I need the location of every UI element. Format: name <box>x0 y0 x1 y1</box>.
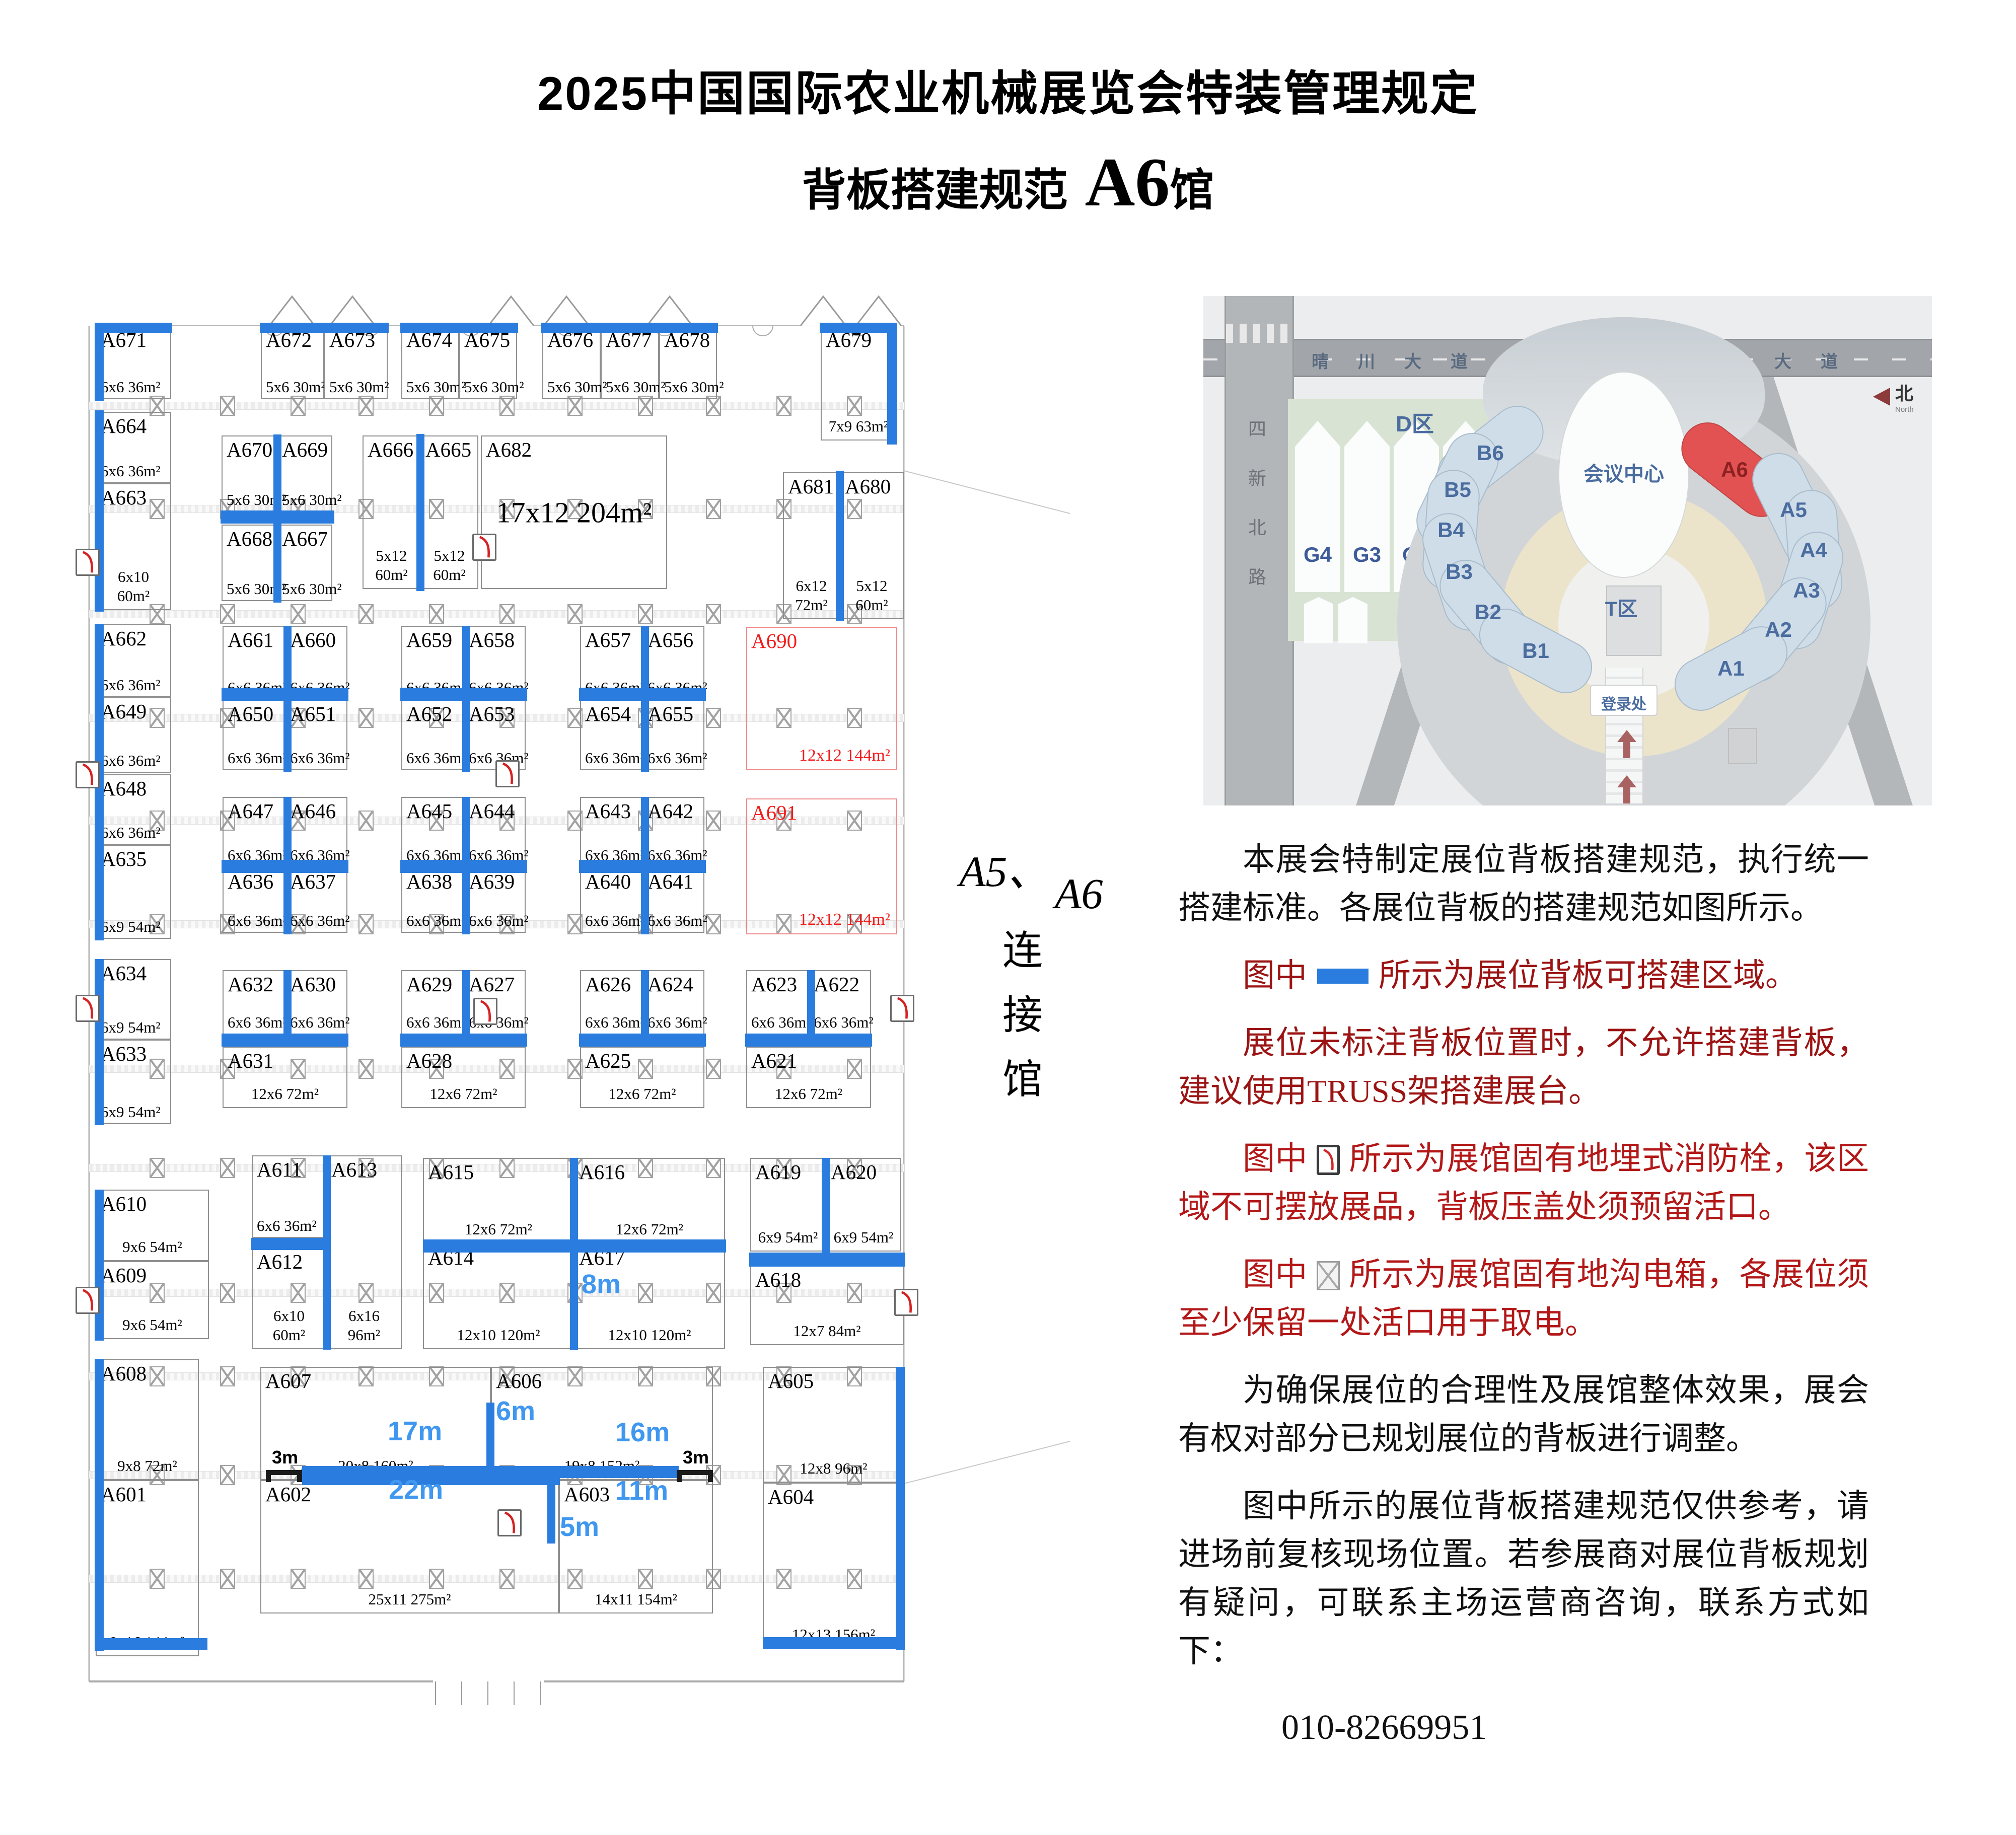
booth-A676: A6765x6 30m² <box>542 326 601 399</box>
map-utility-box <box>1728 728 1757 764</box>
north-sublabel: North <box>1895 405 1914 414</box>
booth-size: 6x6 36m² <box>469 912 529 930</box>
booth-id: A634 <box>101 961 147 985</box>
electrical-box-icon <box>499 604 515 624</box>
booth-id: A663 <box>101 485 147 509</box>
booth-size: 6x1696m² <box>327 1306 401 1346</box>
booth-id: A655 <box>647 702 693 726</box>
backboard-bar <box>896 1367 905 1650</box>
booth-id: A631 <box>228 1049 273 1073</box>
connector-a5: A5、 <box>959 836 1051 899</box>
booth-A640: A6406x6 36m² <box>580 867 642 933</box>
paragraph-prefix: 图中 <box>1243 1141 1308 1177</box>
map-edge <box>1932 296 2009 805</box>
booth-id: A620 <box>831 1160 877 1184</box>
road-label-sixin: 四新北路 <box>1243 419 1269 617</box>
north-arrow-icon <box>1873 388 1890 406</box>
booth-id: A606 <box>496 1369 542 1393</box>
booth-size: 6x6 36m² <box>290 749 350 767</box>
booth-A643: A6436x6 36m² <box>580 797 642 867</box>
booth-A622: A6226x6 36m² <box>809 970 871 1035</box>
booth-size: 12x6 72m² <box>424 1220 573 1239</box>
booth-size: 12x8 96m² <box>764 1459 903 1479</box>
booth-A618: A61812x7 84m² <box>750 1266 904 1345</box>
booth-id: A607 <box>265 1369 311 1393</box>
backboard-length-label: 16m <box>615 1417 670 1448</box>
electrical-box-icon <box>220 1158 235 1178</box>
backboard-bar <box>749 1253 905 1267</box>
booth-A648: A6486x6 36m² <box>96 774 171 845</box>
backboard-bar <box>95 774 104 940</box>
electrical-box-icon <box>706 811 721 831</box>
booth-A626: A6266x6 36m² <box>580 970 642 1035</box>
electrical-box-icon <box>776 396 791 416</box>
booth-A638: A6386x6 36m² <box>401 867 464 933</box>
booth-size: 6x6 36m² <box>406 1013 466 1032</box>
booth-A682: A68217x12 204m² <box>481 435 667 589</box>
booth-id: A653 <box>469 702 515 726</box>
booth-A652: A6526x6 36m² <box>401 700 464 770</box>
entrance-arrow-icon <box>1617 775 1636 805</box>
backboard-bar <box>400 860 527 873</box>
map-hall-label-A1: A1 <box>1717 656 1745 681</box>
booth-id: A682 <box>486 437 532 462</box>
booth-A628: A62812x6 72m² <box>401 1047 526 1108</box>
regulation-text: 本展会特制定展位背板搭建规范，执行统一搭建标准。各展位背板的搭建规范如图所示。图… <box>1178 836 1869 1695</box>
booth-A601: A6019x16 144m² <box>96 1480 199 1656</box>
connector-vertical: 连接馆 <box>989 929 1048 1122</box>
booth-id: A667 <box>282 527 328 551</box>
backboard-bar <box>423 1239 726 1253</box>
booth-id: A633 <box>101 1042 147 1066</box>
booth-id: A664 <box>101 414 147 438</box>
booth-id: A615 <box>428 1160 474 1184</box>
booth-A605: A60512x8 96m² <box>763 1367 904 1483</box>
booth-id: A627 <box>469 972 515 996</box>
booth-A674: A6745x6 30m² <box>401 326 459 399</box>
booth-size: 12x7 84m² <box>751 1322 903 1341</box>
map-hall-label-B1: B1 <box>1522 639 1549 663</box>
booth-id: A642 <box>647 799 693 823</box>
map-hall-label-B4: B4 <box>1437 518 1465 542</box>
booth-A646: A6466x6 36m² <box>285 797 347 867</box>
booth-size: 6x6 36m² <box>228 912 287 930</box>
backboard-bar <box>222 860 348 873</box>
booth-size: 6x6 36m² <box>101 824 161 842</box>
booth-id: A609 <box>101 1263 147 1287</box>
electrical-box-icon <box>220 1283 235 1303</box>
booth-A634: A6346x9 54m² <box>96 959 171 1040</box>
booth-size: 7x9 63m² <box>822 417 895 436</box>
booth-id: A651 <box>290 702 336 726</box>
booth-A670: A6705x6 30m² <box>222 435 277 512</box>
map-hall-label-B2: B2 <box>1474 600 1501 624</box>
booth-size: 17x12 204m² <box>496 495 652 529</box>
backboard-bar <box>547 1482 555 1544</box>
hall-suffix: 馆 <box>1170 165 1214 215</box>
booth-id: A657 <box>585 628 631 652</box>
backboard-bar <box>763 1637 905 1649</box>
venue-map: 晴川大道 晴川大道 四新北路 G4G3G2G1 D区 会议中心 B6B5B4B3… <box>1203 296 2009 805</box>
booth-size: 5x1260m² <box>421 546 477 585</box>
booth-A655: A6556x6 36m² <box>642 700 704 770</box>
booth-size: 6x6 36m² <box>751 1013 811 1032</box>
booth-A641: A6416x6 36m² <box>642 867 704 933</box>
road-label-qingchuan-1: 晴川大道 <box>1312 348 1497 373</box>
booth-size: 6x6 36m² <box>585 749 645 767</box>
booth-id: A622 <box>814 972 859 996</box>
booth-id: A640 <box>585 869 631 894</box>
backboard-bar <box>95 410 104 612</box>
paragraph: 本展会特制定展位背板搭建规范，执行统一搭建标准。各展位背板的搭建规范如图所示。 <box>1178 836 1869 932</box>
contact-phone: 010-82669951 <box>1281 1708 1487 1748</box>
booth-A630: A6306x6 36m² <box>285 970 347 1035</box>
backboard-length-label: 17m <box>388 1416 442 1447</box>
backboard-bar <box>579 1034 706 1047</box>
booth-id: A624 <box>647 972 693 996</box>
booth-id: A649 <box>101 699 147 723</box>
backboard-bar <box>222 1034 348 1047</box>
booth-id: A666 <box>368 437 413 462</box>
booth-A663: A6636x1060m² <box>96 483 171 610</box>
g-hall-G4: G4 <box>1295 421 1340 592</box>
map-hall-label-A3: A3 <box>1793 578 1820 603</box>
map-label-registration: 登录处 <box>1591 692 1657 714</box>
backboard-bar <box>641 970 649 1035</box>
booth-id: A659 <box>406 628 452 652</box>
booth-size: 6x6 36m² <box>228 1013 287 1032</box>
booth-id: A647 <box>228 799 273 823</box>
fire-hydrant-icon <box>890 995 914 1022</box>
booth-id: A616 <box>579 1160 625 1184</box>
electrical-box-icon <box>567 604 583 624</box>
map-label-d-zone: D区 <box>1396 406 1434 438</box>
booth-A629: A6296x6 36m² <box>401 970 464 1035</box>
booth-A672: A6725x6 30m² <box>261 326 324 399</box>
regulation-sheet: 2025中国国际农业机械展览会特装管理规定 背板搭建规范A6馆 <box>0 0 2016 1835</box>
booth-A623: A6236x6 36m² <box>746 970 809 1035</box>
booth-id: A645 <box>406 799 452 823</box>
booth-size: 12x6 72m² <box>224 1084 346 1104</box>
backboard-bar <box>579 860 706 873</box>
booth-id: A690 <box>751 629 797 653</box>
booth-id: A670 <box>227 437 272 462</box>
booth-A620: A6206x9 54m² <box>826 1158 901 1252</box>
map-hall-label-B3: B3 <box>1446 560 1473 584</box>
paragraph-suffix: 所示为展位背板可搭建区域。 <box>1379 958 1797 993</box>
backboard-bar <box>323 1155 331 1350</box>
booth-A644: A6446x6 36m² <box>464 797 526 867</box>
map-hall-label-B6: B6 <box>1477 441 1504 465</box>
booth-size: 6x6 36m² <box>814 1013 874 1032</box>
booth-A673: A6735x6 30m² <box>324 326 388 399</box>
backboard-bar <box>95 1359 104 1651</box>
electrical-box-icon <box>358 914 374 934</box>
booth-id: A639 <box>469 869 515 894</box>
booth-size: 6x6 36m² <box>585 912 645 930</box>
booth-size: 6x6 36m² <box>647 749 707 767</box>
connector-a6: A6 <box>1055 868 1103 919</box>
booth-size: 12x12 144m² <box>799 746 890 765</box>
backboard-bar <box>95 323 172 333</box>
booth-size: 6x6 36m² <box>228 749 287 767</box>
g-hall-label: G4 <box>1295 543 1340 567</box>
electrical-box-icon <box>358 1059 374 1079</box>
map-label-t-zone: T区 <box>1605 593 1637 622</box>
booth-size: 6x9 54m² <box>101 1018 161 1037</box>
booth-A649: A6496x6 36m² <box>96 697 171 773</box>
booth-A633: A6336x9 54m² <box>96 1040 171 1124</box>
booth-id: A681 <box>788 474 834 498</box>
booth-size: 5x6 30m² <box>266 378 326 396</box>
backboard-bar <box>260 323 389 333</box>
booth-id: A660 <box>290 628 336 652</box>
booth-size: 9x8 72m² <box>97 1456 198 1476</box>
booth-A639: A6396x6 36m² <box>464 867 526 933</box>
booth-A635: A6356x9 54m² <box>96 845 171 939</box>
booth-A624: A6246x6 36m² <box>642 970 704 1035</box>
booth-size: 25x11 275m² <box>261 1590 558 1609</box>
backboard-bar <box>95 959 104 1125</box>
entrance-arrow-icon <box>1617 730 1636 761</box>
paragraph: 图中所示为展位背板可搭建区域。 <box>1178 951 1869 1000</box>
booth-A613: A6136x1696m² <box>326 1155 402 1349</box>
gap-3m-bracket <box>677 1470 713 1482</box>
backboard-bar <box>486 1403 494 1468</box>
booth-size: 6x1060m² <box>97 567 170 607</box>
booth-id: A637 <box>290 869 336 894</box>
paragraph: 展位未标注背板位置时，不允许搭建背板，建议使用TRUSS架搭建展台。 <box>1178 1019 1869 1116</box>
booth-id: A612 <box>257 1250 303 1274</box>
electrical-box-icon <box>358 811 374 831</box>
booth-id: A643 <box>585 799 631 823</box>
booth-A612: A6126x1060m² <box>252 1247 326 1349</box>
backboard-bar <box>541 323 718 333</box>
booth-size: 6x6 36m² <box>406 749 466 767</box>
booth-size: 6x6 36m² <box>647 1013 707 1032</box>
electrical-box-icon <box>358 604 374 624</box>
booth-size: 5x1260m² <box>364 546 419 585</box>
backboard-bar <box>745 1034 872 1047</box>
booth-size: 5x6 30m² <box>606 378 666 396</box>
booth-id: A662 <box>101 626 147 650</box>
fire-hydrant-icon <box>76 995 100 1022</box>
booth-A650: A6506x6 36m² <box>223 700 285 770</box>
booth-id: A618 <box>755 1268 801 1292</box>
booth-id: A658 <box>469 628 515 652</box>
fire-hydrant-icon <box>495 760 520 787</box>
booth-id: A605 <box>768 1369 814 1393</box>
paragraph: 图中所示为展馆固有地埋式消防栓，该区域不可摆放展品，背板压盖处须预留活口。 <box>1178 1135 1869 1231</box>
booth-size: 5x6 30m² <box>547 378 607 396</box>
booth-A668: A6685x6 30m² <box>222 525 277 601</box>
booth-A678: A6785x6 30m² <box>659 326 717 399</box>
booth-id: A654 <box>585 702 631 726</box>
booth-A604: A60412x13 156m² <box>763 1483 904 1649</box>
map-label-conference-center: 会议中心 <box>1583 458 1664 487</box>
booth-size: 12x6 72m² <box>575 1220 724 1239</box>
booth-size: 12x6 72m² <box>747 1084 870 1104</box>
booth-size: 5x6 30m² <box>329 378 389 396</box>
booth-A616: A61612x6 72m² <box>574 1158 725 1243</box>
booth-A637: A6376x6 36m² <box>285 867 347 933</box>
booth-size: 5x6 30m² <box>464 378 524 396</box>
backboard-bar <box>579 688 706 701</box>
booth-A621: A62112x6 72m² <box>746 1047 871 1108</box>
booth-size: 6x9 54m² <box>751 1228 825 1247</box>
small-tent <box>1304 597 1333 643</box>
booth-size: 5x6 30m² <box>664 378 724 396</box>
gap-3m-label: 3m <box>272 1447 298 1468</box>
backboard-bar <box>95 1638 207 1650</box>
booth-id: A613 <box>331 1157 377 1182</box>
booth-A610: A6109x6 54m² <box>96 1190 209 1261</box>
backboard-bar <box>836 471 844 621</box>
paragraph: 为确保展位的合理性及展馆整体效果，展会有权对部分已规划展位的背板进行调整。 <box>1178 1366 1869 1463</box>
booth-size: 6x9 54m² <box>101 918 161 936</box>
booth-id: A680 <box>845 474 891 498</box>
booth-size: 6x6 36m² <box>257 1217 317 1235</box>
backboard-bar <box>400 1034 527 1047</box>
backboard-bar <box>95 323 104 401</box>
backboard-bar <box>95 624 104 774</box>
booth-size: 12x10 120m² <box>575 1326 724 1345</box>
booth-id: A641 <box>647 869 693 894</box>
backboard-length-label: 6m <box>496 1396 535 1427</box>
booth-A666: A6665x1260m² <box>363 435 420 589</box>
booth-id: A691 <box>751 800 797 825</box>
backboard-bar <box>570 1158 578 1350</box>
booth-A619: A6196x9 54m² <box>750 1158 826 1252</box>
backboard-length-label: 11m <box>615 1475 668 1506</box>
electrical-box-icon <box>429 604 444 624</box>
electrical-box-icon <box>706 499 721 519</box>
booth-size: 5x6 30m² <box>406 378 466 396</box>
booth-id: A644 <box>469 799 515 823</box>
booth-A691: A69112x12 144m² <box>746 798 897 934</box>
electrical-box-icon <box>291 604 306 624</box>
fire-hydrant-icon <box>472 534 496 561</box>
booth-id: A625 <box>585 1049 631 1073</box>
booth-A614: A61412x10 120m² <box>423 1243 574 1349</box>
electrical-box-icon <box>220 604 235 624</box>
booth-size: 12x10 120m² <box>424 1326 573 1345</box>
electrical-box-icon <box>638 604 653 624</box>
electrical-box-icon <box>220 1569 235 1589</box>
electrical-box-icon <box>220 1366 235 1386</box>
map-hall-label-A5: A5 <box>1780 498 1807 522</box>
fire-hydrant-icon <box>894 1289 918 1316</box>
paragraph: 图中所示的展位背板搭建规范仅供参考，请进场前复核现场位置。若参展商对展位背板规划… <box>1178 1482 1869 1675</box>
electrical-box-icon <box>220 1465 235 1485</box>
booth-id: A626 <box>585 972 631 996</box>
backboard-bar <box>222 688 348 701</box>
booth-id: A646 <box>290 799 336 823</box>
fire-hydrant-icon <box>473 998 497 1025</box>
map-hall-label-B5: B5 <box>1444 478 1471 502</box>
booth-A625: A62512x6 72m² <box>580 1047 704 1108</box>
booth-size: 12x12 144m² <box>799 910 890 929</box>
backboard-bar <box>462 970 470 1035</box>
booth-size: 6x9 54m² <box>101 1103 161 1121</box>
backboard-bar <box>400 688 527 701</box>
backboard-bar <box>416 434 424 591</box>
booth-id: A602 <box>265 1482 311 1506</box>
small-tent <box>1338 597 1367 643</box>
electrical-box-icon <box>358 708 374 728</box>
booth-size: 6x6 36m² <box>406 912 466 930</box>
booth-size: 6x1272m² <box>784 576 839 616</box>
backboard-length-label: 22m <box>389 1474 443 1505</box>
backboard-bar <box>400 323 518 333</box>
booth-size: 5x1260m² <box>841 576 903 616</box>
booth-A645: A6456x6 36m² <box>401 797 464 867</box>
map-hall-label-A4: A4 <box>1800 538 1827 562</box>
booth-size: 6x1060m² <box>253 1306 325 1346</box>
fire-hydrant-icon <box>76 761 100 788</box>
booth-id: A636 <box>228 869 273 894</box>
booth-size: 6x6 36m² <box>101 752 161 770</box>
booth-A675: A6755x6 30m² <box>459 326 517 399</box>
booth-A647: A6476x6 36m² <box>223 797 285 867</box>
booth-id: A661 <box>228 628 273 652</box>
booth-id: A623 <box>751 972 797 996</box>
backboard-bar <box>887 323 897 445</box>
booth-A642: A6426x6 36m² <box>642 797 704 867</box>
backboard-length-label: 5m <box>560 1511 599 1543</box>
booth-A636: A6366x6 36m² <box>223 867 285 933</box>
booth-id: A608 <box>101 1361 147 1385</box>
booth-A669: A6695x6 30m² <box>277 435 332 512</box>
booth-id: A638 <box>406 869 452 894</box>
booth-A677: A6775x6 30m² <box>601 326 659 399</box>
electrical-box-icon <box>706 1059 721 1079</box>
booth-id: A632 <box>228 972 273 996</box>
booth-id: A668 <box>227 527 272 551</box>
booth-A667: A6675x6 30m² <box>277 525 332 601</box>
registration-box: 登录处 <box>1590 685 1658 716</box>
booth-id: A635 <box>101 847 147 871</box>
booth-size: 6x6 36m² <box>101 462 161 480</box>
electrical-box-icon <box>150 1158 165 1178</box>
north-label: 北 <box>1895 379 1914 405</box>
booth-size: 6x6 36m² <box>585 1013 645 1032</box>
paragraph-prefix: 图中 <box>1243 1257 1308 1292</box>
backboard-bar <box>807 970 815 1035</box>
booth-id: A604 <box>768 1485 814 1509</box>
paragraph-prefix: 图中 <box>1243 958 1307 993</box>
gap-3m-bracket <box>266 1470 302 1482</box>
fire-hydrant-icon <box>497 1509 522 1536</box>
g-hall-label: G3 <box>1344 543 1390 567</box>
booth-size: 5x6 30m² <box>282 491 342 509</box>
electrical-box-icon <box>706 708 721 728</box>
booth-id: A628 <box>406 1049 452 1073</box>
booth-id: A656 <box>647 628 693 652</box>
booth-id: A621 <box>751 1049 797 1073</box>
booth-id: A652 <box>406 702 452 726</box>
electrical-box-icon <box>706 914 721 934</box>
booth-size: 12x6 72m² <box>581 1084 703 1104</box>
booth-size: 9x6 54m² <box>97 1315 208 1335</box>
gap-3m-label: 3m <box>683 1447 709 1468</box>
booth-A611: A6116x6 36m² <box>252 1155 326 1238</box>
booth-size: 9x6 54m² <box>97 1237 208 1257</box>
booth-A608: A6089x8 72m² <box>96 1359 199 1480</box>
booth-size: 6x6 36m² <box>101 378 161 396</box>
booth-id: A650 <box>228 702 273 726</box>
booth-A671: A6716x6 36m² <box>96 326 171 399</box>
